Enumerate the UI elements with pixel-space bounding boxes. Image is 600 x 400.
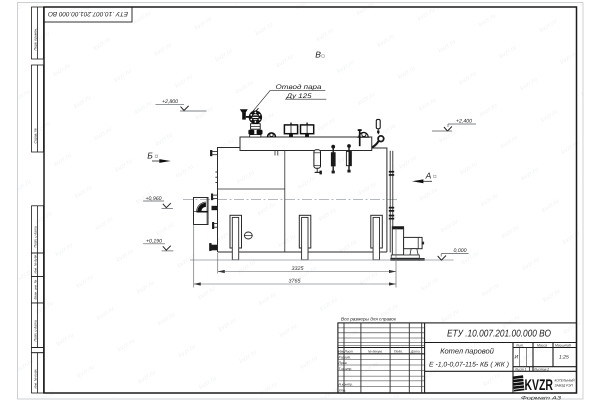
svg-text:Б: Б — [147, 150, 153, 160]
svg-text:И: И — [515, 355, 519, 361]
svg-text:+0,960: +0,960 — [145, 196, 161, 202]
svg-text:Подп.: Подп. — [394, 350, 403, 354]
svg-text:Справ. №: Справ. № — [34, 128, 38, 144]
svg-text:ЗАВОД РЭП: ЗАВОД РЭП — [555, 384, 574, 388]
svg-text:ЕТУ .10.007.201.00.000 ВО: ЕТУ .10.007.201.00.000 ВО — [48, 10, 128, 17]
svg-text:+2,800: +2,800 — [162, 99, 178, 105]
svg-text:Н.контр.: Н.контр. — [339, 383, 353, 387]
svg-text:Пров.: Пров. — [339, 361, 348, 365]
svg-text:+2,400: +2,400 — [456, 119, 472, 125]
svg-text:Дата: Дата — [410, 350, 420, 354]
svg-text:Лист 1: Лист 1 — [514, 368, 527, 372]
svg-text:KVZR: KVZR — [525, 377, 554, 394]
svg-text:КОТЕЛЬНЫЙ: КОТЕЛЬНЫЙ — [555, 379, 576, 383]
svg-text:Отвод пара: Отвод пара — [276, 84, 322, 91]
svg-text:Лист: Лист — [344, 350, 354, 354]
svg-text:№ докум.: № докум. — [368, 350, 383, 354]
svg-text:Взам. инв. №: Взам. инв. № — [34, 279, 38, 299]
svg-text:Масштаб: Масштаб — [555, 344, 571, 348]
svg-text:0,000: 0,000 — [454, 248, 467, 254]
svg-text:А: А — [425, 170, 432, 180]
svg-text:Подп. и дата: Подп. и дата — [34, 226, 38, 247]
svg-text:Котел паровой: Котел паровой — [440, 347, 495, 356]
svg-text:Лит.: Лит. — [515, 344, 524, 348]
svg-text:Подп. и дата: Подп. и дата — [34, 320, 38, 341]
svg-text:Ду 125: Ду 125 — [285, 93, 312, 100]
svg-text:3765: 3765 — [289, 279, 302, 285]
svg-text:В: В — [315, 50, 321, 60]
svg-text:Листов 2: Листов 2 — [533, 368, 549, 372]
svg-text:3325: 3325 — [292, 266, 305, 272]
svg-text:Утв.: Утв. — [339, 389, 347, 393]
svg-text:Инв. № дубл.: Инв. № дубл. — [34, 254, 38, 274]
svg-text:Формат А3: Формат А3 — [521, 395, 561, 400]
svg-text:Перв. примен.: Перв. примен. — [34, 28, 38, 51]
svg-text:Инв. № подл.: Инв. № подл. — [34, 369, 38, 389]
svg-text:1:25: 1:25 — [559, 355, 569, 361]
svg-text:Т.контр.: Т.контр. — [339, 367, 353, 371]
svg-text:Е -1,0-0,07-115- КБ ( ЖК ): Е -1,0-0,07-115- КБ ( ЖК ) — [429, 362, 509, 369]
svg-text:Все размеры для справок: Все размеры для справок — [341, 316, 397, 321]
svg-text:Разраб.: Разраб. — [339, 356, 351, 360]
svg-text:ЕТУ .10.007.201.00.000 ВО: ЕТУ .10.007.201.00.000 ВО — [447, 329, 551, 340]
svg-text:+0,190: +0,190 — [146, 239, 162, 245]
svg-text:Масса: Масса — [537, 344, 547, 348]
